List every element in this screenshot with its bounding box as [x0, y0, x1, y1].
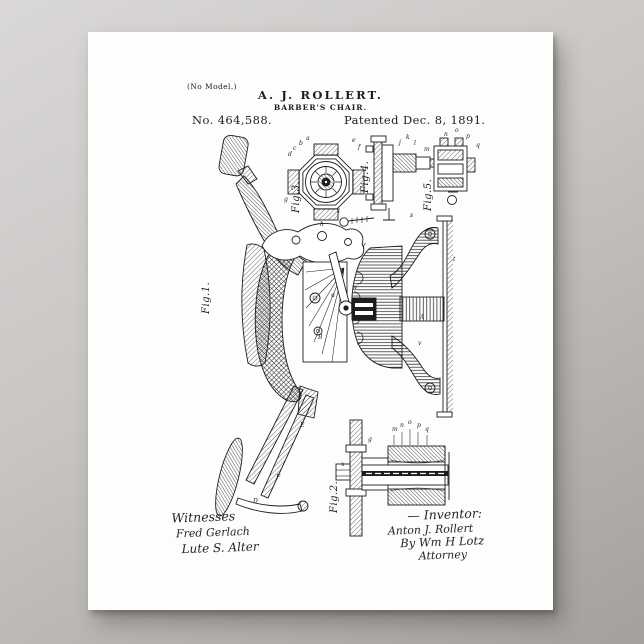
- fig5-bracket-drawing: [434, 138, 475, 205]
- reference-letter: t: [453, 256, 456, 263]
- upper-leg: [390, 228, 438, 289]
- reference-letter: w: [352, 284, 358, 291]
- reference-letter: q: [425, 426, 429, 433]
- reference-letter: n: [400, 422, 404, 429]
- fig1-label: Fig.1.: [201, 282, 212, 315]
- cylinder-shell-top: [388, 446, 445, 462]
- chair-base-drawing: [352, 216, 453, 417]
- hub-block: [352, 298, 376, 320]
- reference-letter: f: [357, 144, 362, 151]
- base-drum: [352, 246, 402, 368]
- fig1-chair-drawing: [210, 134, 364, 518]
- cylinder-shell-bottom: [388, 489, 445, 505]
- reference-letter: A: [419, 314, 425, 321]
- seat-brace: [298, 386, 318, 418]
- arm-scrollwork: [262, 223, 364, 263]
- witness-signature-1: Fred Gerlach: [176, 525, 258, 539]
- fig3-gear-drawing: [288, 144, 374, 226]
- reference-letter: v: [418, 340, 422, 347]
- reference-letter: x: [341, 461, 345, 468]
- reference-letter: a: [306, 135, 310, 142]
- pivot: [339, 301, 353, 315]
- reference-letter: D: [252, 498, 258, 505]
- reference-letter: b: [299, 140, 303, 147]
- inventor-block: — Inventor: Anton J. Rollert By Wm H Lot…: [387, 507, 485, 562]
- headrest-bracket: [238, 166, 257, 184]
- patent-date: Patented Dec. 8, 1891.: [344, 113, 485, 127]
- fig4-label: Fig.4.: [360, 161, 371, 194]
- headrest-pad: [218, 134, 249, 177]
- reference-letter: k: [406, 134, 410, 141]
- patent-poster[interactable]: (No Model.) A. J. ROLLERT. BARBER'S CHAI…: [88, 32, 553, 610]
- attorney-label: Attorney: [419, 548, 485, 561]
- reference-letter: E: [299, 422, 305, 429]
- reference-letter: s: [410, 212, 413, 219]
- fig3-label: Fig.3.: [291, 181, 302, 214]
- reference-letter: o: [455, 127, 459, 134]
- reference-letter: l: [414, 140, 416, 147]
- reference-letter: p: [417, 422, 421, 429]
- reference-letter: q: [476, 142, 480, 149]
- fig5-label: Fig.5.: [423, 179, 434, 212]
- seat-cushion: [255, 251, 301, 402]
- witnesses-heading: Witnesses: [171, 510, 257, 525]
- invention-title: BARBER'S CHAIR.: [88, 103, 553, 112]
- reference-letter: m: [424, 146, 430, 153]
- reference-letters: abcdefghijklmnopqrstAvBuwFEDmnopqgx: [252, 127, 480, 505]
- reference-letter: u: [331, 292, 335, 299]
- reference-letter: p: [466, 133, 470, 140]
- reference-letter: j: [397, 139, 401, 146]
- fig4-shaft-drawing: [366, 136, 436, 220]
- screw: [340, 218, 348, 226]
- reference-letter: n: [444, 131, 448, 138]
- reference-letter: i: [338, 208, 340, 215]
- attorney-by-line: By Wm H Lotz: [400, 535, 484, 549]
- lower-leg: [392, 336, 440, 395]
- reference-letter: m: [392, 426, 398, 433]
- inventor-heading: — Inventor:: [407, 507, 483, 522]
- reference-letter: r: [363, 242, 367, 249]
- foot-pedal: [210, 436, 248, 518]
- reference-letter: e: [352, 137, 356, 144]
- patent-number: No. 464,588.: [192, 113, 272, 127]
- link-arm: [329, 252, 349, 306]
- reference-letter: c: [293, 145, 297, 152]
- reference-letter: F: [275, 474, 281, 481]
- wall: [350, 420, 362, 536]
- shell-panel: [303, 262, 347, 362]
- base-column: [400, 297, 444, 321]
- reference-letter: h: [320, 221, 324, 228]
- footrest-strut: [246, 386, 303, 484]
- product-photo-background: (No Model.) A. J. ROLLERT. BARBER'S CHAI…: [0, 0, 644, 644]
- back-rail: [242, 244, 270, 366]
- patent-inventor-title: A. J. ROLLERT.: [88, 88, 553, 102]
- witnesses-block: Witnesses Fred Gerlach Lute S. Alter: [171, 510, 258, 555]
- reference-letter: d: [288, 151, 292, 158]
- backrest: [236, 176, 306, 275]
- witness-signature-2: Lute S. Alter: [181, 540, 258, 555]
- reference-letter: o: [408, 419, 412, 426]
- reference-letter: g: [284, 196, 288, 203]
- fig2-label: Fig.2.: [329, 481, 340, 514]
- footrest-strut-2: [261, 395, 314, 498]
- reference-letter: B: [317, 334, 323, 341]
- reference-letter: g: [368, 436, 372, 443]
